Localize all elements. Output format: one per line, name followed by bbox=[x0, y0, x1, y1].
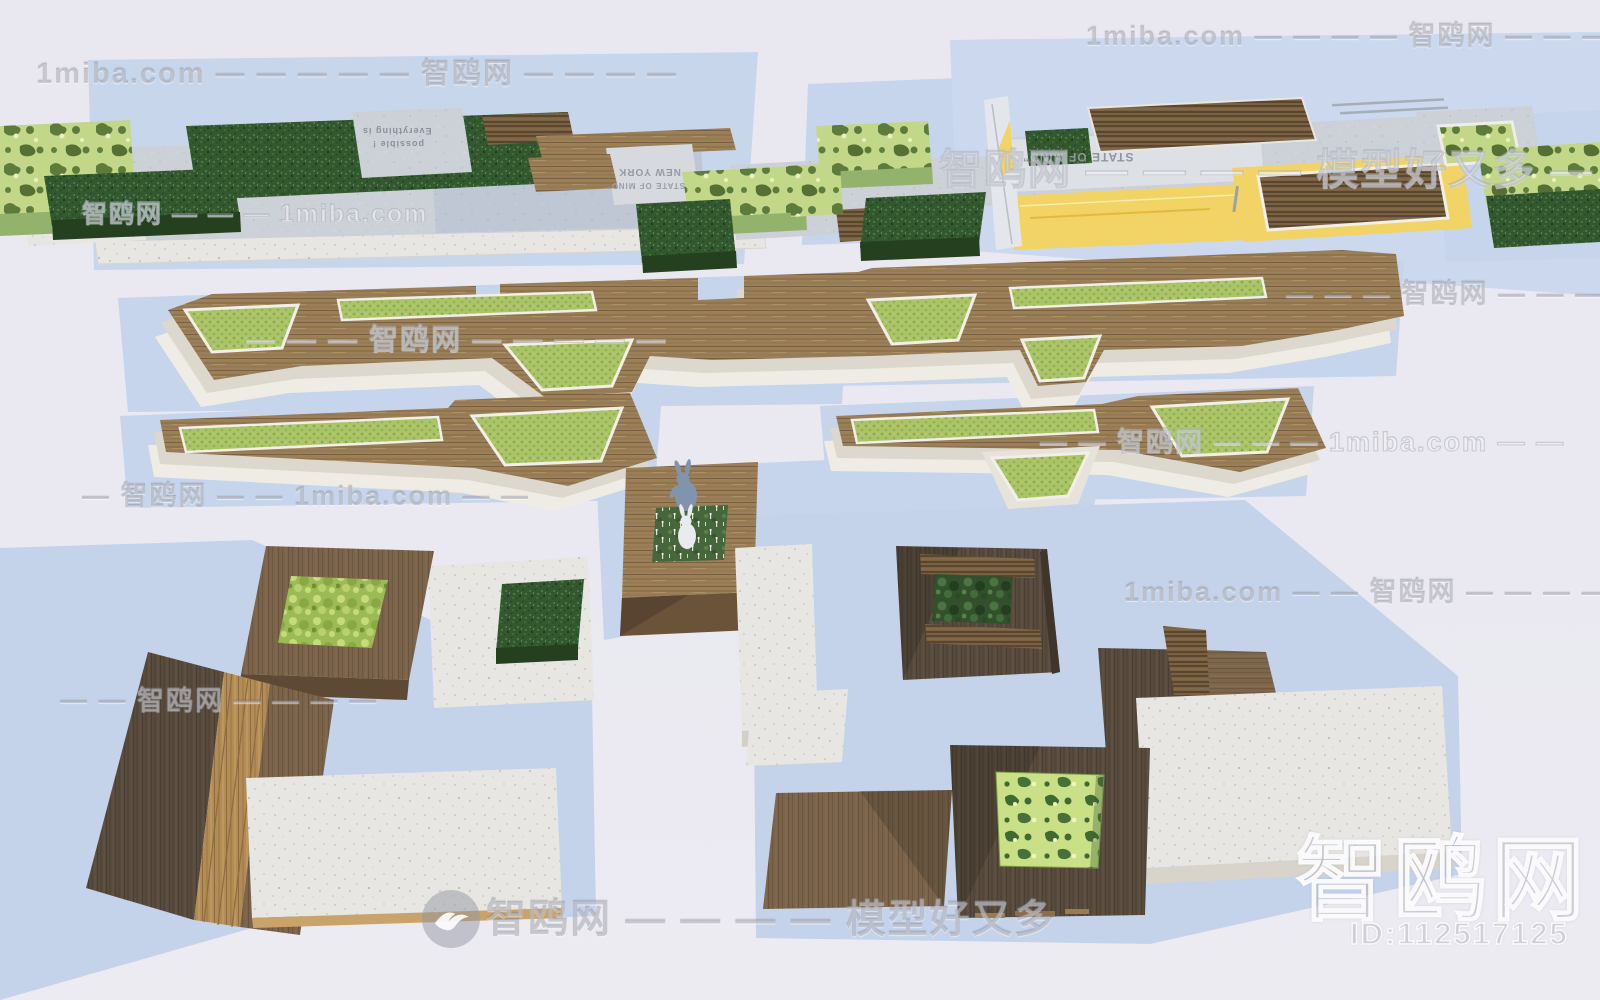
gull-logo-icon bbox=[422, 890, 480, 948]
wood-deck-gold bbox=[528, 154, 618, 192]
shrub-planter bbox=[932, 574, 1013, 624]
terrazzo-slab-large bbox=[246, 768, 562, 918]
wood-grate-court bbox=[1258, 164, 1448, 230]
bench-planter-platform bbox=[896, 546, 1060, 680]
moss-square bbox=[278, 576, 388, 648]
quote-slab bbox=[352, 108, 472, 178]
hedge-strip bbox=[1025, 128, 1092, 166]
hedge-block bbox=[1486, 189, 1600, 248]
hedge-square bbox=[496, 579, 584, 652]
camo-grass-patch bbox=[788, 163, 843, 217]
camo-cube bbox=[996, 772, 1104, 868]
model-id-text: ID:112517125 bbox=[1350, 916, 1569, 952]
terrazzo-slab bbox=[746, 689, 848, 766]
render-canvas: { "branding": { "site_name": "智鸥网", "sit… bbox=[0, 0, 1600, 1000]
gull-icon bbox=[429, 897, 473, 941]
